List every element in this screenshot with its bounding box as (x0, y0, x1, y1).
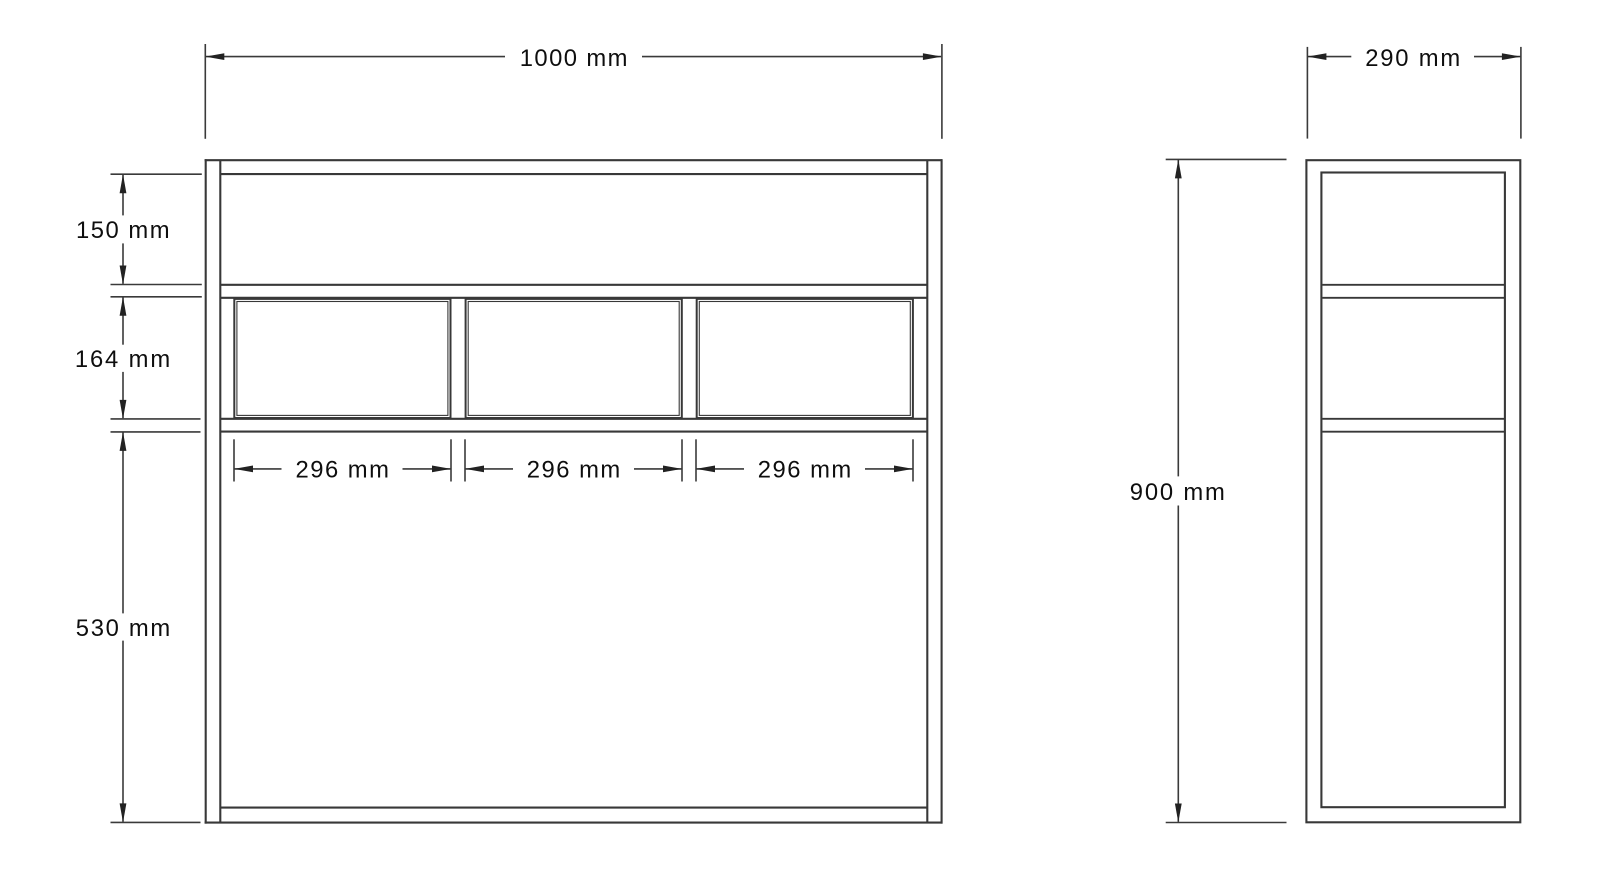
svg-text:1000 mm: 1000 mm (520, 45, 628, 72)
svg-text:900 mm: 900 mm (1130, 479, 1225, 506)
svg-text:296 mm: 296 mm (758, 457, 852, 484)
svg-text:530 mm: 530 mm (76, 615, 171, 642)
svg-text:164 mm: 164 mm (75, 346, 170, 373)
svg-text:296 mm: 296 mm (295, 457, 389, 484)
svg-text:296 mm: 296 mm (527, 457, 621, 484)
svg-text:150 mm: 150 mm (76, 217, 170, 244)
svg-text:290 mm: 290 mm (1365, 45, 1460, 72)
